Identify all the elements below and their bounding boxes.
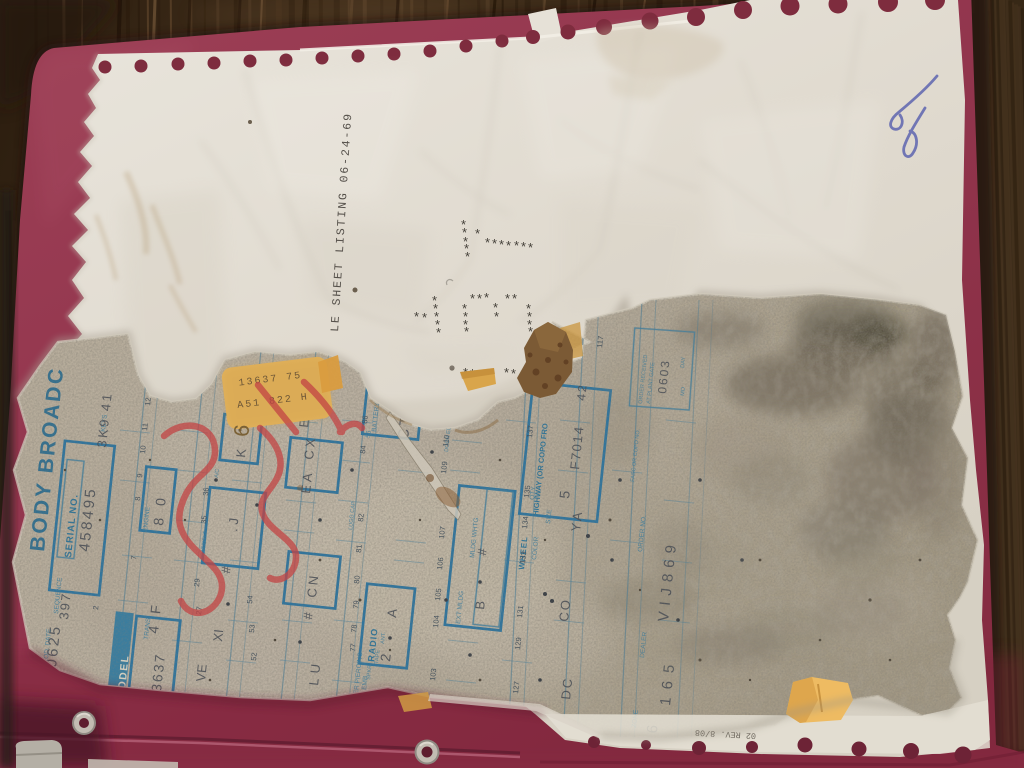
- svg-text:*: *: [464, 324, 469, 339]
- svg-text:*: *: [512, 291, 517, 306]
- svg-text:*: *: [477, 291, 482, 306]
- svg-text:*: *: [504, 365, 509, 380]
- svg-text:*: *: [521, 239, 526, 254]
- svg-text:*: *: [528, 240, 533, 255]
- svg-text:*: *: [484, 290, 489, 305]
- svg-text:*: *: [475, 226, 480, 241]
- svg-text:*: *: [499, 237, 504, 252]
- svg-text:*: *: [506, 238, 511, 253]
- svg-text:*: *: [494, 309, 499, 324]
- svg-text:*: *: [470, 291, 475, 306]
- svg-text:*: *: [514, 238, 519, 253]
- svg-text:*: *: [465, 249, 470, 264]
- svg-text:*: *: [511, 366, 516, 381]
- svg-text:*: *: [485, 235, 490, 250]
- svg-text:*: *: [414, 309, 419, 324]
- svg-text:*: *: [422, 310, 427, 325]
- svg-text:*: *: [492, 236, 497, 251]
- svg-text:*: *: [505, 291, 510, 306]
- svg-text:*: *: [436, 325, 441, 340]
- svg-text:6: 6: [230, 423, 256, 439]
